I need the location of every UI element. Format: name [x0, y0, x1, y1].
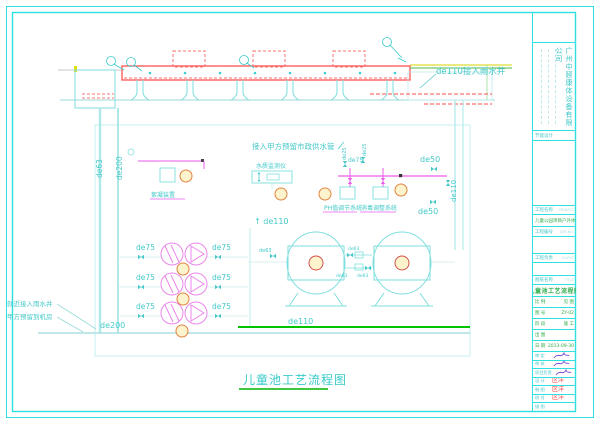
projectlead-signature — [554, 369, 572, 377]
pipe-label-de110-up: ↑ de110 — [254, 217, 289, 226]
sig-row-checked: 审 核 — [533, 360, 576, 369]
near-well-note: 就近接入雨水井 — [7, 299, 53, 308]
dwgno-label: 图 号 — [535, 310, 545, 316]
job-no-label-en: JOB NO. — [560, 230, 574, 234]
pipe-label-de25b: de25 — [362, 143, 368, 156]
design-label: 设 计 — [535, 379, 550, 383]
sig-row-drawn: 制 图 区洋 — [533, 385, 576, 394]
drawing-caption: 儿童池工艺流程图 — [243, 372, 347, 387]
reserved-note: 甲方预留到机房 — [7, 312, 53, 321]
info-row-scale: 比 例 见 图 — [533, 296, 576, 307]
pump-group: de75 de75 de75 de75 de75 de75 — [118, 243, 248, 337]
client-row: 工程负责 CLIENT — [533, 253, 576, 262]
scale-value: 见 图 — [564, 299, 574, 305]
pipe-label-de110-bottom: de110 — [288, 317, 313, 326]
job-no-label: 工程编号 — [535, 229, 553, 235]
pipe-label-de63-m1: de63 — [348, 246, 359, 252]
title-block-spacer — [533, 140, 576, 205]
title-block-spacer3 — [533, 262, 576, 275]
dwgno-value: ZY-02 — [561, 311, 574, 316]
company-name: 广州中颐康体设备有限公司 — [554, 47, 574, 130]
company-section: 广州中颐康体设备有限公司 — [533, 42, 576, 130]
date-value: 2013-09-30 — [548, 344, 574, 349]
title-block-spacer2 — [533, 236, 576, 253]
sig-row-projectlead: 项目负责 — [533, 368, 576, 377]
proof-name: 区洋 — [552, 395, 564, 401]
client-label-en: CLIENT — [562, 256, 574, 260]
pipe-label-de110-vert: de110 — [450, 180, 458, 202]
sig-row-design: 设 计 区洋 — [533, 377, 576, 386]
supply-note: 接入甲方预留市政供水管 — [252, 141, 335, 151]
gutter-note: de110接入雨水井 — [436, 66, 505, 77]
pipe-label-de75-r3: de75 — [212, 302, 231, 311]
approved-signature — [552, 352, 570, 360]
pipe-label-de75-l3: de75 — [136, 302, 155, 311]
job-no-row: 工程编号 JOB NO. — [533, 226, 576, 236]
pipe-label-de50a: de50 — [420, 155, 440, 164]
info-row-dwgno: 图 号 ZY-02 — [533, 307, 576, 318]
sheet-title-label: 图纸名称 — [535, 277, 553, 283]
scale-label: 比 例 — [535, 299, 545, 305]
date-label: 日 期 — [535, 343, 545, 349]
issue-label: 出 图 — [535, 332, 545, 338]
pipe-label-de75-r2: de75 — [212, 273, 231, 282]
project-name-value: 儿童公园项目户外体育设施 — [533, 214, 576, 226]
sheet-title-label-en: TITLE — [565, 278, 574, 282]
pipe-label-de63-m2: de63 — [336, 273, 347, 279]
design-name: 区洋 — [552, 378, 564, 384]
disinfect-system-label: 消毒调整系统 — [361, 204, 397, 212]
pipe-label-de50b: de50 — [418, 207, 438, 216]
machine-room-boundary — [95, 125, 470, 356]
pipe-label-de200-vert: de200 — [115, 156, 124, 180]
pipe-label-de75-l2: de75 — [136, 273, 155, 282]
client-label: 工程负责 — [535, 255, 553, 261]
title-block-top-box — [533, 12, 576, 42]
sig-row-trace: 描 图 — [533, 402, 576, 411]
pipe-label-de63-t: de63 — [259, 248, 272, 254]
energy-design-row: 节能设计 — [533, 130, 576, 140]
pipe-label-de75-r1: de75 — [212, 243, 231, 252]
pool-section: de110接入雨水井 — [58, 38, 512, 109]
flow-diagram: de63 de200 絮凝装置 接入甲方预留市政供水管 de25 de25 de… — [7, 100, 470, 356]
approved-label: 审 定 — [535, 354, 550, 358]
pipe-label-de63-vert: de63 — [95, 159, 104, 178]
project-label: 工程名称 — [535, 207, 553, 213]
pipe-label-de63-m3: de63 — [357, 273, 368, 279]
sig-row-approved: 审 定 — [533, 351, 576, 360]
info-row-stage: 阶 段 施 工 — [533, 318, 576, 329]
floc-label: 絮凝装置 — [151, 191, 175, 199]
proof-label: 校 对 — [535, 396, 550, 400]
filter-tanks: de63 de63 de63 de63 — [248, 232, 455, 306]
sheet-title-row: 图纸名称 TITLE — [533, 275, 576, 284]
stage-label: 阶 段 — [535, 321, 545, 327]
pipe-label-de75-l1: de75 — [136, 243, 155, 252]
project-name-row: 工程名称 PROJECT — [533, 205, 576, 214]
projectlead-label: 项目负责 — [535, 371, 552, 375]
checked-label: 审 核 — [535, 362, 550, 366]
info-row-issue: 出 图 — [533, 329, 576, 340]
project-label-en: PROJECT — [559, 208, 574, 212]
ph-system-label: PH值调节系统 — [324, 204, 362, 212]
energy-design-label: 节能设计 — [535, 133, 553, 139]
monitor-label: 水质监测仪 — [256, 162, 286, 170]
cad-drawing-sheet: de110接入雨水井 de63 de200 絮凝装置 接入甲方预留市政供水管 d… — [0, 0, 600, 424]
checked-signature — [552, 360, 570, 368]
stage-value: 施 工 — [564, 321, 574, 327]
drawn-label: 制 图 — [535, 388, 550, 392]
title-block: 广州中颐康体设备有限公司 节能设计 工程名称 PROJECT 儿童公园项目户外体… — [532, 12, 576, 412]
schematic: de110接入雨水井 de63 de200 絮凝装置 接入甲方预留市政供水管 d… — [0, 0, 600, 424]
info-row-date: 日 期 2013-09-30 — [533, 340, 576, 351]
pipe-label-de200-bottom: de200 — [100, 321, 125, 330]
trace-label: 描 图 — [535, 405, 550, 409]
sheet-title-value: 儿童池工艺流程图 — [533, 284, 576, 296]
sig-row-proof: 校 对 区洋 — [533, 394, 576, 403]
drawn-name: 区洋 — [552, 387, 564, 393]
